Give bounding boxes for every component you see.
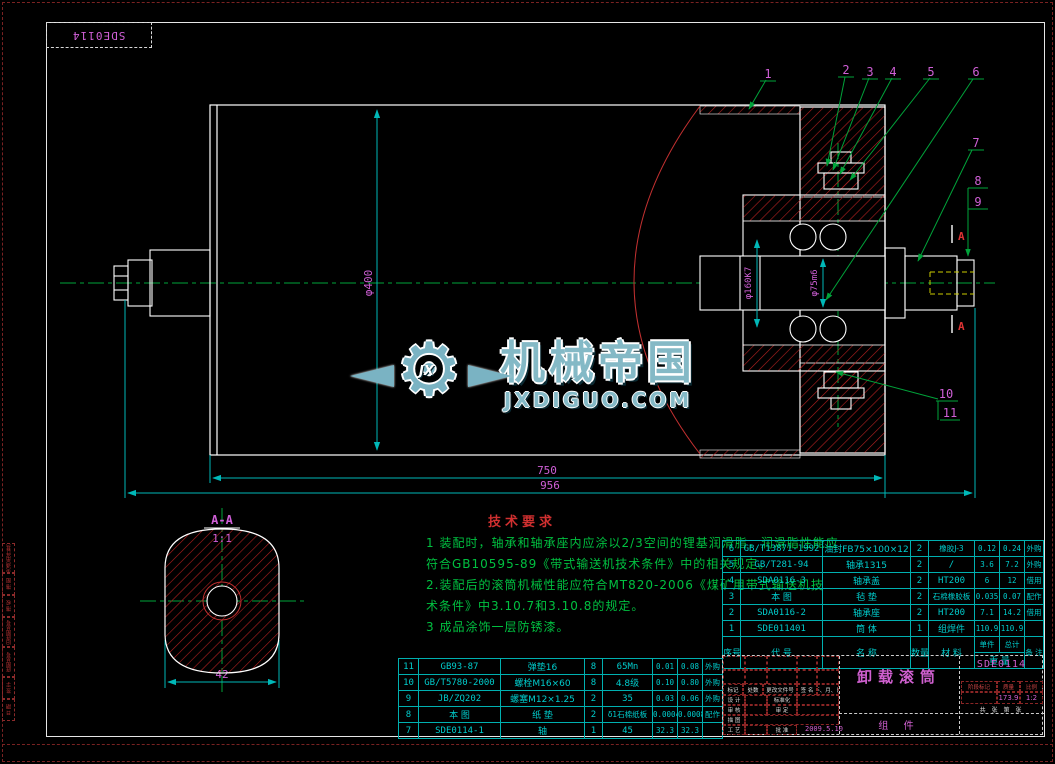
wing-left-icon <box>350 365 394 387</box>
table-row: 8本 图纸 垫2δ1石棉纸板0.00040.0008配作 <box>399 707 723 723</box>
sign-label: 设 计 <box>723 695 745 705</box>
mass-label: 质量 <box>997 681 1020 692</box>
sign-cell <box>745 715 839 725</box>
watermark-text: 机械帝国 JXDIGUO.COM <box>500 340 696 412</box>
dim-hub-diameter: φ160K7 <box>744 267 754 300</box>
table-row: 10GB/T5780-2000螺栓M16×6084.8级0.100.80外购 <box>399 675 723 691</box>
wing-right-icon <box>468 365 512 387</box>
tech-line: 术条件》中3.10.7和3.10.8的规定。 <box>426 596 731 617</box>
table-row: 5GB/T281-94轴承13152/3.67.2外购 <box>723 557 1044 573</box>
rev-header-cell: 年、月、日 <box>817 684 839 695</box>
rev-cell <box>797 656 817 670</box>
table-row: 2SDA0116-2轴承座2HT2007.114.2借用 <box>723 605 1044 621</box>
tech-line: 2.装配后的滚筒机械性能应符合MT820-2006《煤矿用带式输送机技 <box>426 575 731 596</box>
technical-requirements: 技术要求 1 装配时，轴承和轴承座内应涂以2/3空间的锂基润滑脂，润滑脂性能应 … <box>426 512 731 638</box>
table-row: 6GB/T13871-1992油封FB75×100×122橡胶J-30.120.… <box>723 541 1044 557</box>
rev-cell <box>817 670 839 684</box>
table-row: 3本 图毡 垫2石棉橡胶板0.0350.07配作 <box>723 589 1044 605</box>
rev-header-cell: 更改文件号 <box>763 684 797 695</box>
balloon-1: 1 <box>764 67 771 81</box>
rev-cell <box>797 670 817 684</box>
section-mark-a-top: A <box>958 230 965 243</box>
table-row: 4SDA0116-3轴承盖2HT200612借用 <box>723 573 1044 589</box>
stage-mark-label: 阶段标记 <box>961 681 997 692</box>
rev-header-cell: 处数 <box>743 684 763 695</box>
watermark-site: JXDIGUO.COM <box>500 388 696 412</box>
sign-label: 标准化 <box>767 695 797 705</box>
tech-line: 符合GB10595-89《带式输送机技术条件》中的相关规定。 <box>426 554 731 575</box>
scale-label: 比例 <box>1020 681 1043 692</box>
table-row: 11GB93-87弹垫16865Mn0.010.08外购 <box>399 659 723 675</box>
cad-drawing-sheet: SDE0114 借(通)用件登记 描 图 描 校 旧底图总号 底图总号 签 字 … <box>0 0 1055 764</box>
bom-header-row: 序号代 号名 称数量材 料单件总计备 注 <box>723 637 1044 653</box>
balloon-3: 3 <box>866 65 873 79</box>
section-mark-a-bottom: A <box>958 320 965 333</box>
sign-cell <box>797 695 839 705</box>
balloon-9: 9 <box>974 195 981 209</box>
product-title: 卸载滚筒 <box>839 666 959 687</box>
mass-value: 173.9 <box>997 692 1020 704</box>
tech-line: 1 装配时，轴承和轴承座内应涂以2/3空间的锂基润滑脂，润滑脂性能应 <box>426 533 731 554</box>
sign-cell <box>797 705 839 715</box>
balloon-8: 8 <box>974 174 981 188</box>
bom-table-right: 6GB/T13871-1992油封FB75×100×122橡胶J-30.120.… <box>722 540 1044 669</box>
sign-cell <box>745 705 767 715</box>
dim-length-750: 750 <box>537 464 557 477</box>
rev-cell <box>745 656 767 670</box>
watermark: ⚙ JX 机械帝国 JXDIGUO.COM <box>372 330 696 422</box>
title-block-date: 2009.5.10 <box>805 725 843 733</box>
table-row: 7SDE0114-1轴14532.332.3 <box>399 723 723 739</box>
section-label: A-A <box>211 513 233 527</box>
balloon-2: 2 <box>842 63 849 77</box>
tech-line: 3 成品涂饰一层防锈漆。 <box>426 617 731 638</box>
product-subtitle: 组 件 <box>839 717 959 732</box>
sheet-count: 共 张 第 张 <box>959 705 1044 714</box>
stage-mark-value <box>961 692 997 704</box>
balloon-5: 5 <box>927 65 934 79</box>
balloon-11: 11 <box>943 406 957 420</box>
bom-table-left: 11GB93-87弹垫16865Mn0.010.08外购 10GB/T5780-… <box>398 658 723 739</box>
dim-shaft-diameter: φ75m6 <box>810 269 820 296</box>
sign-cell <box>745 725 767 735</box>
title-block: 标记 处数 更改文件号 签 名 年、月、日 设 计 标准化 审 核 审 定 描 … <box>722 655 1043 735</box>
rev-cell <box>745 670 767 684</box>
watermark-title: 机械帝国 <box>500 340 696 386</box>
rev-cell <box>767 670 797 684</box>
sign-cell <box>745 695 767 705</box>
section-view-aa <box>165 528 279 673</box>
balloon-7: 7 <box>972 136 979 150</box>
sign-label: 审 定 <box>767 705 797 715</box>
balloon-6: 6 <box>972 65 979 79</box>
rev-cell <box>817 656 839 670</box>
rev-header-cell: 签 名 <box>797 684 817 695</box>
sign-label: 批 准 <box>767 725 797 735</box>
watermark-gear-logo: ⚙ JX <box>372 330 490 422</box>
table-row: 1SDE011401筒 体1组焊件110.9110.9 <box>723 621 1044 637</box>
balloon-10: 10 <box>939 387 953 401</box>
dim-drum-diameter: φ400 <box>362 270 375 297</box>
scale-value: 1:2 <box>1020 692 1043 704</box>
dim-length-956: 956 <box>540 479 560 492</box>
technical-requirements-title: 技术要求 <box>488 512 731 533</box>
rev-header-cell: 标记 <box>723 684 743 695</box>
sign-label: 审 核 <box>723 705 745 715</box>
drawing-number: SDE0114 <box>959 659 1044 670</box>
sign-label: 描 图 <box>723 715 745 725</box>
rev-cell <box>767 656 797 670</box>
sign-label: 工 艺 <box>723 725 745 735</box>
gear-monogram: JX <box>419 364 434 379</box>
rev-cell <box>723 670 745 684</box>
table-row: 9JB/ZQ202螺塞M12×1.252350.030.06外购 <box>399 691 723 707</box>
rev-cell <box>723 656 745 670</box>
section-scale: 1:1 <box>212 532 232 545</box>
balloon-4: 4 <box>889 65 896 79</box>
